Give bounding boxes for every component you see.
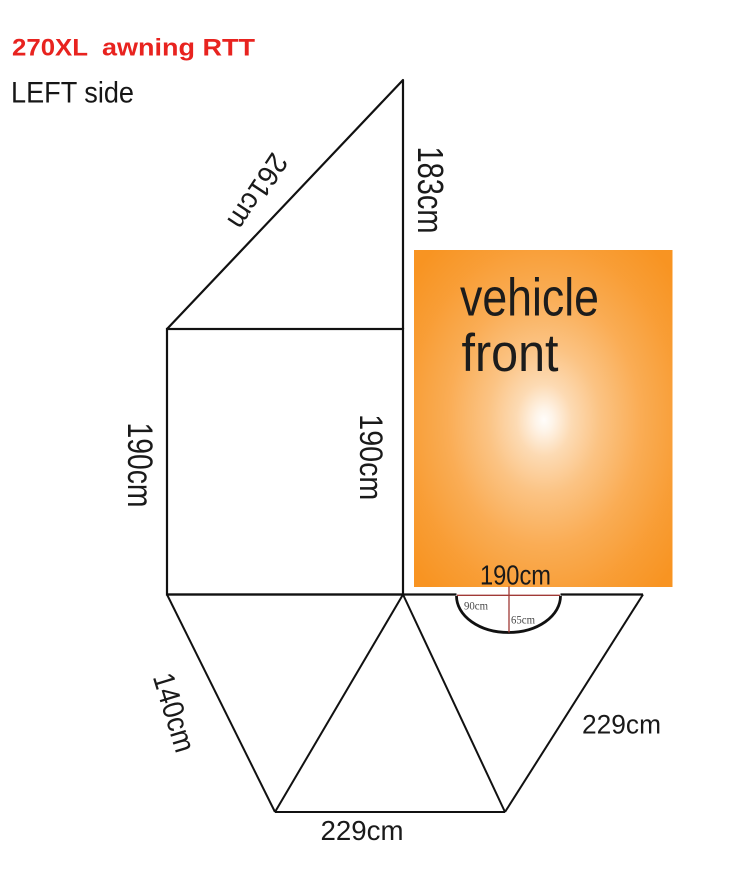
svg-text:270XL: 270XL — [12, 35, 88, 62]
svg-text:90cm: 90cm — [464, 601, 488, 613]
svg-text:front: front — [462, 324, 559, 383]
svg-text:vehicle: vehicle — [460, 269, 599, 328]
svg-text:190cm: 190cm — [353, 414, 389, 500]
svg-text:229cm: 229cm — [321, 815, 404, 846]
svg-text:190cm: 190cm — [120, 423, 159, 508]
svg-text:65cm: 65cm — [511, 615, 535, 627]
svg-text:140cm: 140cm — [146, 669, 201, 756]
svg-text:190cm: 190cm — [480, 560, 551, 591]
svg-text:261cm: 261cm — [220, 147, 293, 235]
svg-text:awning RTT: awning RTT — [102, 35, 255, 62]
svg-text:229cm: 229cm — [582, 710, 661, 740]
svg-text:LEFT side: LEFT side — [11, 77, 134, 110]
svg-text:183cm: 183cm — [410, 147, 451, 234]
